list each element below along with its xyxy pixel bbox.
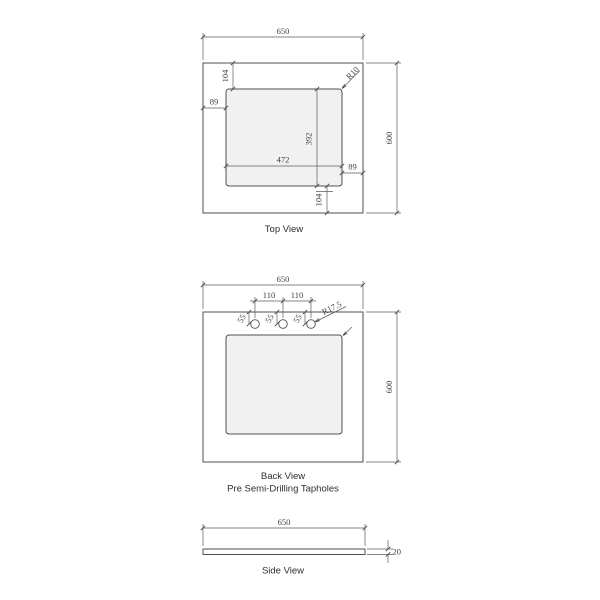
dim-label: 392: [304, 133, 314, 146]
back-dim-hole-spacing: 110 110: [250, 290, 316, 318]
back-view-caption: Back View: [261, 471, 305, 482]
back-view-subcaption: Pre Semi-Drilling Tapholes: [227, 484, 339, 495]
leader-arrowhead: [315, 319, 320, 322]
taphole-center: [279, 320, 288, 329]
dim-label: 55: [235, 312, 248, 324]
back-view: 650 600 110 110 55: [201, 274, 401, 495]
dim-label: 89: [210, 97, 219, 107]
back-cutout-corner-pointer: [343, 327, 352, 336]
top-dim-corner-radius-r10: R10: [342, 64, 361, 88]
side-view-slab-outline: [203, 549, 365, 555]
dim-label: 110: [291, 290, 303, 300]
top-dim-left-offset-89: 89: [201, 97, 228, 111]
side-view: 650 20 Side View: [201, 517, 401, 577]
top-view-caption: Top View: [265, 224, 304, 235]
dim-label: R10: [344, 64, 361, 81]
top-dim-right-offset-89: 89: [340, 162, 365, 176]
dim-label: 650: [278, 517, 291, 527]
side-dim-width-650: 650: [201, 517, 367, 546]
side-view-caption: Side View: [262, 566, 304, 577]
dim-label: 104: [314, 193, 324, 207]
dim-label: 89: [348, 162, 357, 172]
top-dim-height-600: 600: [366, 61, 401, 215]
dim-label: 110: [263, 290, 275, 300]
dim-label: 600: [384, 381, 394, 394]
side-dim-thickness-20: 20: [367, 540, 401, 563]
dim-label: 55: [291, 312, 304, 324]
top-dim-width-650: 650: [201, 26, 365, 60]
taphole-left: [251, 320, 260, 329]
top-view-basin-cutout: [226, 89, 342, 186]
technical-drawing-sheet: 650 600 104 89 R10: [0, 0, 600, 600]
dim-label: 20: [393, 547, 402, 557]
dim-label: 600: [384, 132, 394, 145]
dim-label: 104: [220, 69, 230, 83]
dim-label: 472: [277, 155, 290, 165]
top-view: 650 600 104 89 R10: [201, 26, 401, 235]
back-view-basin-cutout: [226, 335, 342, 434]
taphole-right: [307, 320, 316, 329]
back-dim-hole-radius-r17-5: R17.5: [315, 299, 346, 322]
dim-label: 55: [263, 312, 276, 324]
dim-label: 650: [277, 274, 290, 284]
dim-label: R17.5: [320, 299, 343, 317]
top-dim-bottom-offset-104: 104: [314, 184, 330, 215]
top-dim-top-offset-104: 104: [220, 61, 235, 91]
back-dim-height-600: 600: [366, 310, 401, 464]
dim-label: 650: [277, 26, 290, 36]
drawing-svg: 650 600 104 89 R10: [0, 0, 600, 600]
